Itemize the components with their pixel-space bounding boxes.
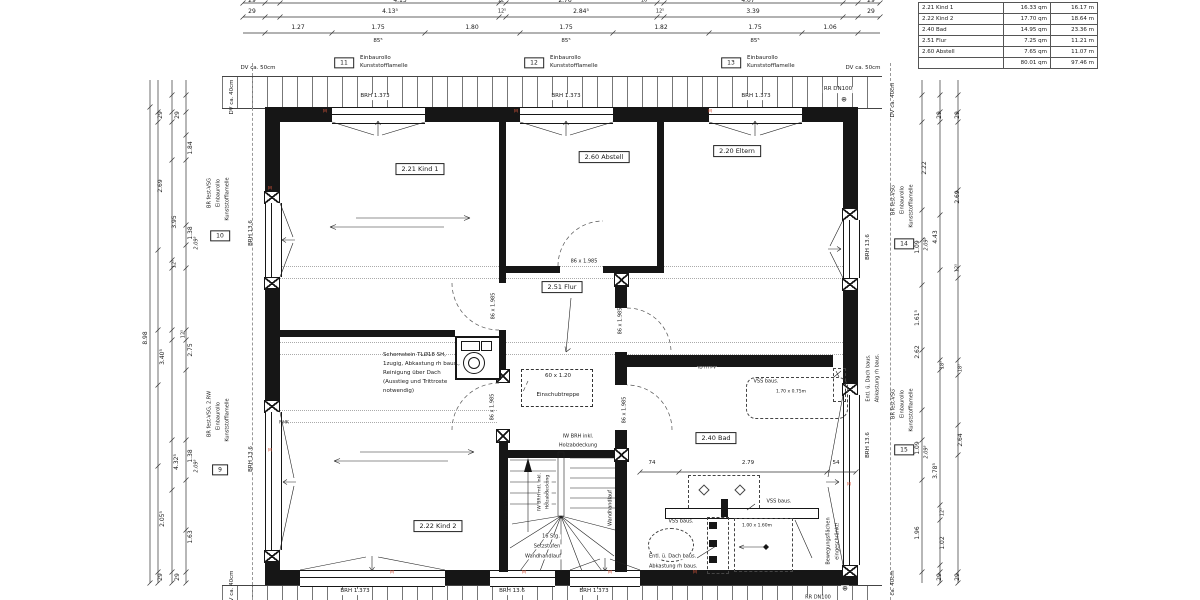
room-perimeter-cell: 18.64 m: [1051, 14, 1098, 25]
floor-plan-canvas: 2.21 Kind 116.33 qm16.17 m 2.22 Kind 217…: [0, 0, 1200, 600]
wall-note: ID rh PV: [697, 367, 717, 372]
wall-segment: [603, 266, 664, 273]
stair-note: Wandhandlauf: [504, 490, 509, 526]
brh-label: BRH 13.6: [866, 234, 872, 260]
fixture-note: VSS baus.: [668, 519, 695, 524]
movement-note: eingeschränkt!: [835, 522, 840, 560]
dim-label: 2.62: [915, 345, 921, 358]
ref-box-12: 12: [524, 57, 544, 68]
table-row: 2.21 Kind 116.33 qm16.17 m: [919, 3, 1098, 14]
door-size: 86 x 1.985: [618, 308, 623, 335]
room-perimeter-cell: 23.36 m: [1051, 25, 1098, 36]
roof-eave-band-bottom: [222, 585, 882, 600]
dv-note: DV ca. 40cm: [230, 571, 236, 600]
chimney-flue-box: [481, 341, 492, 351]
room-label: 2.60 Abstell: [579, 151, 630, 163]
dv-note: ca. 40cm: [891, 570, 897, 595]
dim-label: 29: [867, 9, 875, 15]
dim-label: 85⁵: [561, 39, 570, 45]
dim-label: 4.07: [741, 0, 754, 4]
wall-segment: [615, 352, 627, 385]
chimney-flue-circle: [468, 357, 480, 369]
m-marker: M: [847, 484, 851, 489]
ref-note: Einbaurollo: [900, 390, 905, 418]
ref-box-10: 10: [210, 230, 230, 241]
room-name-cell: 2.51 Flur: [919, 36, 1004, 47]
table-row: 2.40 Bad14.95 qm23.36 m: [919, 25, 1098, 36]
dim-label: 1.80: [465, 25, 478, 31]
wall-segment: [627, 355, 833, 367]
dim-label: 29: [867, 0, 875, 4]
dim-label: 12⁵: [181, 330, 186, 338]
dim-label: 1.27: [291, 25, 304, 31]
ref-box-15: 15: [894, 444, 914, 455]
vent-note: Entl. ü. Dach baus.: [866, 354, 871, 401]
wall-segment: [508, 450, 615, 458]
wall-segment: [640, 570, 858, 585]
wall-segment: [555, 570, 570, 585]
wall-segment: [657, 122, 664, 273]
m-marker: M: [390, 572, 394, 577]
m-marker: M: [268, 188, 272, 193]
dim-label: 4.15: [393, 0, 406, 4]
dim-label: 2.69: [158, 179, 164, 192]
window: [570, 570, 640, 587]
wall-segment: [425, 107, 520, 122]
brh-label: BRH 13.6: [249, 220, 255, 246]
table-row: 2.51 Flur7.25 qm11.21 m: [919, 36, 1098, 47]
rr-note: RR DN100: [823, 87, 853, 93]
wall-segment: [265, 107, 280, 192]
dim-label: 2.64: [958, 433, 964, 446]
span-direction-arrows: [330, 216, 571, 464]
vent-shaft: [833, 368, 846, 402]
room-label: 2.20 Eltern: [713, 145, 761, 157]
dim-label: 1.61⁵: [915, 310, 921, 326]
door-size: 86 x 1.985: [490, 394, 495, 421]
window: [265, 203, 282, 277]
chimney-note: (Ausstieg und Trittroste: [383, 380, 447, 386]
dim-label: 4.43: [933, 230, 939, 243]
dim-label: 4.13⁵: [382, 9, 398, 15]
ref-note: Kunststofflamelle: [550, 64, 598, 70]
dim-label: 2.75: [188, 343, 194, 356]
door-size: 86 x 1.985: [622, 397, 627, 424]
dim-label: 2.69: [955, 190, 961, 203]
dim-label: 74: [649, 461, 656, 467]
stair-note: 16 Stg.: [541, 534, 561, 539]
ref-box-9: 9: [212, 464, 228, 475]
ref-note: Einbaurollo: [747, 56, 778, 62]
dim-label: 1.96: [915, 526, 921, 539]
dim-label: 3.39: [746, 9, 759, 15]
wall-segment: [265, 561, 280, 585]
fixture-note: VSS baus.: [754, 379, 779, 384]
ref-note: BR fest-VSG: [891, 389, 896, 419]
m-marker: M: [323, 111, 327, 116]
brh-label: BRH 1.373: [740, 94, 771, 100]
dim-label: 29: [158, 111, 164, 119]
rr-symbol: ⊕: [841, 585, 849, 592]
ref-note: Kunststofflamelle: [360, 64, 408, 70]
stair-direction-arrowhead: [524, 458, 532, 472]
room-perimeter-cell: 11.21 m: [1051, 36, 1098, 47]
ref-note: Kunststofflamelle: [225, 398, 230, 441]
m-marker: M: [514, 111, 518, 116]
height-line: [280, 266, 843, 267]
dim-label: 29: [955, 573, 961, 581]
wall-segment: [615, 460, 627, 572]
brh-label: BRH 13.6: [249, 446, 255, 472]
dim-label: 1.75: [748, 25, 761, 31]
m-marker: M: [708, 111, 712, 116]
wall-segment: [613, 107, 709, 122]
dim-label: 1.82: [654, 25, 667, 31]
dim-label: 12⁵: [498, 0, 506, 4]
dim-label: 3.95: [172, 215, 178, 228]
room-name-cell: 2.22 Kind 2: [919, 14, 1004, 25]
room-perimeter-cell: 11.07 m: [1051, 47, 1098, 58]
dim-label: 8.98: [143, 331, 149, 344]
brh-label: BRH 13.6: [866, 432, 872, 458]
height-line: [280, 278, 843, 279]
stair-note: IW BRH inkl.: [562, 434, 595, 439]
dim-label: 1.84: [188, 141, 194, 154]
m-marker: M: [268, 450, 272, 455]
dim-label: 29: [248, 0, 256, 4]
room-name-cell: [919, 58, 1004, 69]
plumbing-fitting: [709, 540, 717, 547]
dim-label: 1.06: [823, 25, 836, 31]
stair-note: Setzstufen: [533, 544, 562, 549]
ref-note: BR fest-VSG: [207, 178, 212, 208]
vent-note: Abkastung rh baus.: [875, 354, 880, 402]
ref-note: Kunststofflamelle: [747, 64, 795, 70]
wall-segment: [615, 285, 627, 308]
chimney-note: Schornstein TLØ18 SH,: [383, 353, 446, 359]
wall-segment: [506, 266, 560, 273]
dim-label: 2.76: [558, 0, 571, 4]
dim-label: 2.09⁵: [924, 445, 929, 458]
dim-label: 2.05⁵: [160, 511, 166, 527]
room-label: 2.40 Bad: [695, 432, 736, 444]
window: [843, 395, 860, 565]
eave-boundary-right: [890, 63, 891, 600]
room-label: 2.21 Kind 1: [395, 163, 444, 175]
height-line: [280, 342, 843, 343]
dim-label: 1.09: [915, 240, 921, 253]
chimney-flue-box: [461, 341, 480, 351]
eave-boundary-left: [252, 63, 253, 600]
dim-label: 1.02: [940, 536, 946, 549]
dim-label: 2.09⁵: [194, 459, 199, 472]
height-line: [280, 422, 497, 423]
wall-segment: [499, 122, 506, 283]
window: [265, 412, 282, 550]
chimney-note: notwendig): [383, 389, 414, 395]
room-area-cell: 7.25 qm: [1004, 36, 1051, 47]
room-name-cell: 2.40 Bad: [919, 25, 1004, 36]
room-area-cell: 16.33 qm: [1004, 3, 1051, 14]
room-label: 2.22 Kind 2: [413, 520, 462, 532]
ref-box-13: 13: [721, 57, 741, 68]
table-row: 80.01 qm97.46 m: [919, 58, 1098, 69]
wall-segment: [265, 288, 280, 400]
ref-note: BR fest-VSG, 2.RW: [207, 391, 212, 437]
room-area-cell: 14.95 qm: [1004, 25, 1051, 36]
dv-note: DV ca. 40cm: [230, 80, 236, 115]
ref-box-11: 11: [334, 57, 354, 68]
window: [843, 220, 860, 278]
dim-label: 2.79: [742, 461, 754, 467]
ref-note: Kunststofflamelle: [225, 177, 230, 220]
plumbing-fitting: [709, 556, 717, 563]
dim-label: 3.78⁵: [933, 463, 939, 479]
dim-label: 29: [937, 573, 943, 581]
dim-label: 29: [937, 111, 943, 119]
ref-note: Einbaurollo: [360, 56, 391, 62]
stair-note: Wandhandlauf: [608, 490, 613, 526]
movement-note: Bewegungsflächen: [826, 517, 831, 564]
vent-note: Abkastung rh baus.: [648, 564, 698, 569]
wall-segment: [843, 107, 858, 208]
dim-label: 85⁵: [373, 39, 382, 45]
rr-note: RR DN100: [804, 595, 832, 600]
stair-note: IW BRH mtl. inkl.: [539, 472, 544, 512]
ref-note: Einbaurollo: [550, 56, 581, 62]
room-perimeter-cell: 16.17 m: [1051, 3, 1098, 14]
dim-label: 54: [833, 461, 840, 467]
m-marker: M: [693, 572, 697, 577]
brh-label: BRH 1.373: [578, 589, 609, 595]
dim-label: 85⁵: [750, 39, 759, 45]
dim-label: 12⁵: [498, 9, 506, 14]
dv-note: DV ca. 50cm: [846, 66, 881, 72]
hatch-note: Einschubtreppe: [537, 393, 580, 399]
wall-segment: [445, 570, 490, 585]
window: [520, 107, 613, 124]
dim-label: 29: [175, 573, 181, 581]
dv-note: DV ca. 40cm: [891, 83, 897, 118]
area-table: 2.21 Kind 116.33 qm16.17 m 2.22 Kind 217…: [918, 2, 1098, 69]
room-area-cell: 17.70 qm: [1004, 14, 1051, 25]
fixture-size: 1.70 x 0.75m: [776, 391, 806, 396]
window: [300, 570, 445, 587]
ref-note: Kunststofflamelle: [909, 184, 914, 227]
table-row: 2.22 Kind 217.70 qm18.64 m: [919, 14, 1098, 25]
wall-note: NHK: [279, 422, 289, 427]
stair-note: Holzabdeckung: [558, 443, 598, 448]
room-perimeter-cell: 97.46 m: [1051, 58, 1098, 69]
dim-label: 1.63: [188, 530, 194, 543]
m-marker: M: [522, 572, 526, 577]
dim-label: 29: [175, 111, 181, 119]
dim-label: 29: [248, 9, 256, 15]
dim-label: 29: [158, 573, 164, 581]
wall-segment: [615, 430, 627, 448]
door-size: 86 x 1.985: [491, 293, 496, 320]
dim-label: 12⁵: [172, 260, 177, 268]
room-area-cell: 80.01 qm: [1004, 58, 1051, 69]
dim-label: 18⁵: [958, 364, 963, 372]
brh-label: BRH 13.6: [498, 589, 526, 595]
ref-note: Einbaurollo: [216, 179, 221, 207]
stair-note: Holzabdeckung: [547, 474, 552, 511]
hatch-size: 60 x 1.20: [545, 374, 571, 380]
ref-note: Einbaurollo: [216, 402, 221, 430]
window: [332, 107, 425, 124]
dv-note: DV ca. 50cm: [241, 66, 276, 72]
m-marker: M: [608, 572, 612, 577]
room-name-cell: 2.60 Abstell: [919, 47, 1004, 58]
dim-label: 12⁵: [940, 508, 945, 516]
dim-label: 4.32⁵: [174, 454, 180, 470]
ref-note: BR fest-VSG: [891, 185, 896, 215]
dim-label: 1.09: [915, 441, 921, 454]
window: [709, 107, 802, 124]
dim-label: 16⁵: [641, 0, 649, 4]
table-row: 2.60 Abstell7.65 qm11.07 m: [919, 47, 1098, 58]
dim-label: 12⁵: [955, 264, 960, 272]
dim-label: 1.75: [371, 25, 384, 31]
plumbing-fitting: [721, 499, 728, 517]
dim-label: 3.40⁵: [160, 349, 166, 365]
fixture-note: VSS baus.: [766, 499, 793, 504]
brh-label: BRH 1.373: [550, 94, 581, 100]
brh-label: BRH 1.373: [359, 94, 390, 100]
brh-label: BRH 1.373: [339, 589, 370, 595]
room-label: 2.51 Flur: [542, 281, 583, 293]
dim-label: 1.75: [559, 25, 572, 31]
fixture-size: 1.00 x 1.60m: [742, 525, 772, 530]
plumbing-fitting: [709, 522, 717, 529]
dim-label: 12⁵: [656, 9, 664, 14]
dim-label: 2.09⁵: [194, 236, 199, 249]
ref-box-14: 14: [894, 238, 914, 249]
room-name-cell: 2.21 Kind 1: [919, 3, 1004, 14]
dim-label: 2.22: [922, 161, 928, 174]
height-line: [280, 410, 497, 411]
ref-note: Einbaurollo: [900, 186, 905, 214]
chimney-note: Reinigung über Dach: [383, 371, 441, 377]
dim-label: 2.84⁵: [573, 9, 589, 15]
chimney-note: 1zugig, Abkastung rh baus.,: [383, 362, 460, 368]
dim-label: 18⁵: [940, 361, 945, 369]
dim-label: 2.09⁵: [924, 237, 929, 250]
wall-segment: [277, 330, 455, 337]
rr-symbol: ⊕: [840, 96, 848, 103]
ref-note: Kunststofflamelle: [909, 388, 914, 431]
dim-label: 29: [955, 111, 961, 119]
room-area-cell: 7.65 qm: [1004, 47, 1051, 58]
stair-note: Wandhandlauf: [524, 554, 562, 559]
door-size: 86 x 1.985: [570, 259, 599, 264]
vent-note: Entl. ü. Dach baus.: [648, 554, 697, 559]
